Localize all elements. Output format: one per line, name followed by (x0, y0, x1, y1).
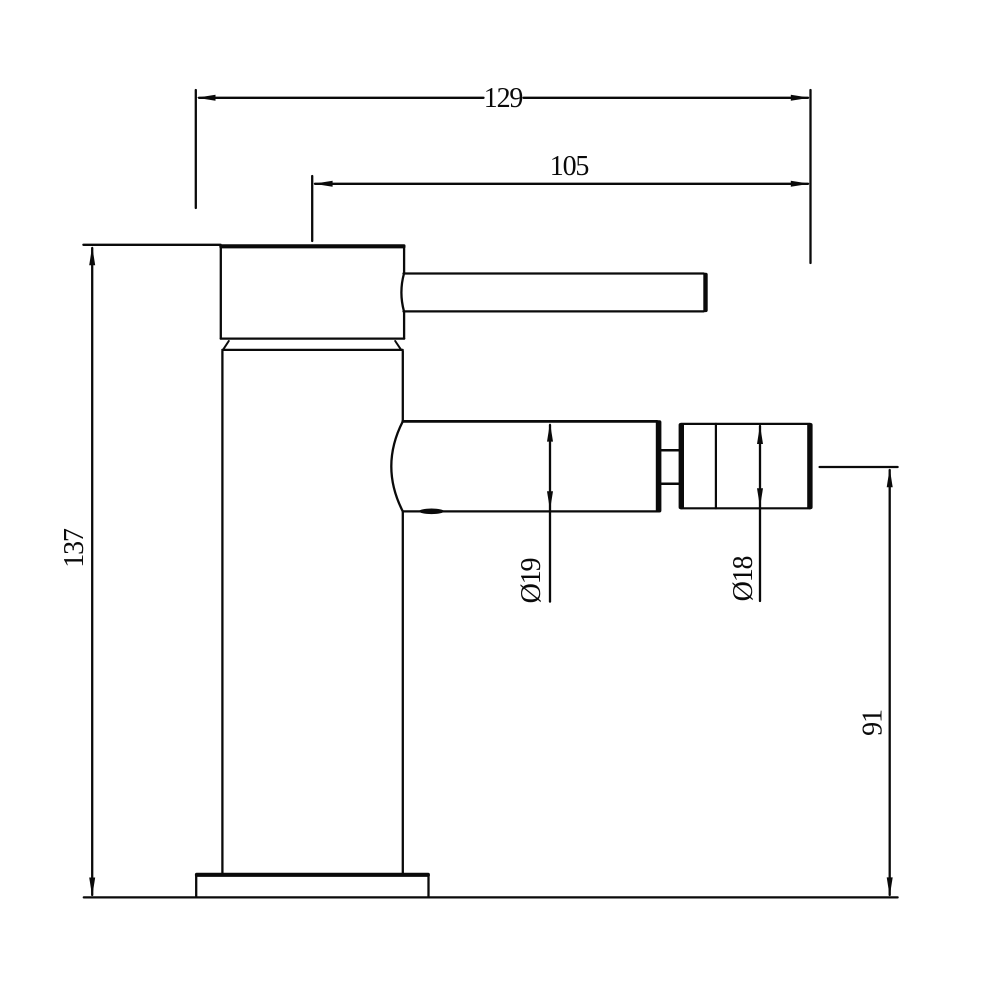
svg-text:129: 129 (484, 83, 523, 114)
svg-text:105: 105 (550, 151, 589, 182)
svg-text:Ø19: Ø19 (516, 558, 547, 603)
svg-text:91: 91 (858, 710, 889, 736)
svg-text:Ø18: Ø18 (728, 556, 759, 601)
svg-text:137: 137 (59, 528, 90, 568)
